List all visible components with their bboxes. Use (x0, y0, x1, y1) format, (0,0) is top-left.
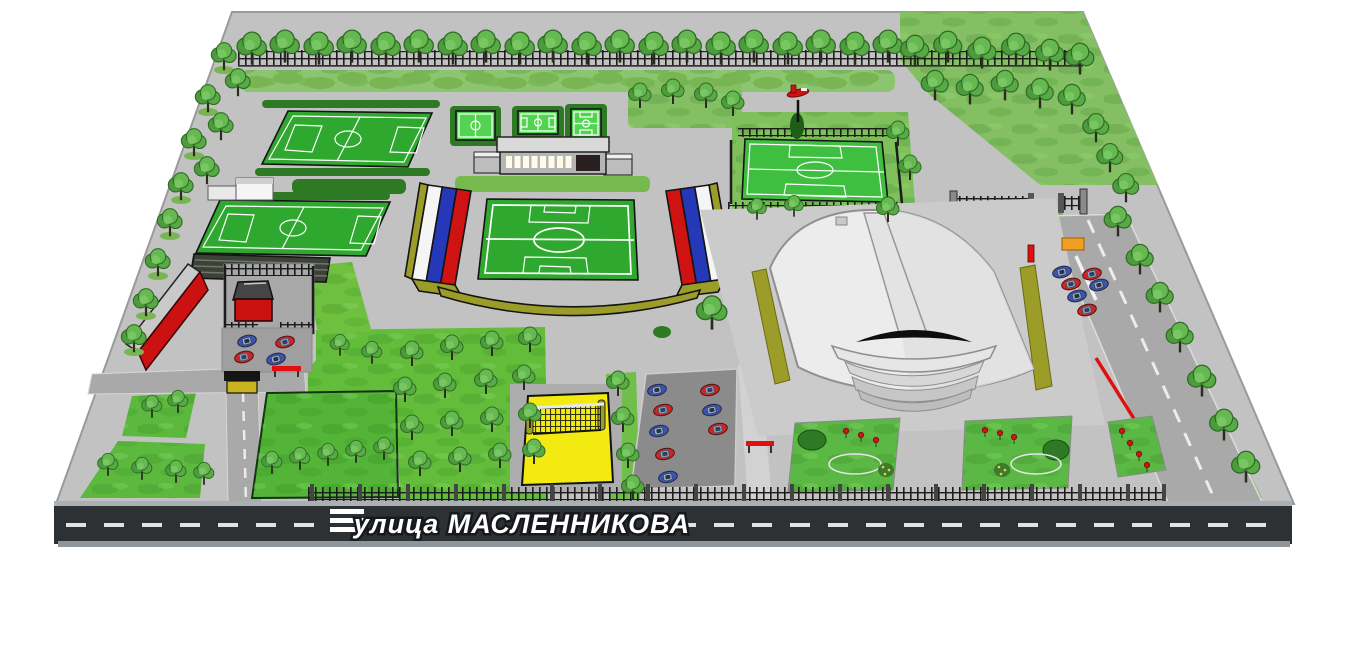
volleyball-court (510, 384, 622, 492)
site-plan-svg: улица МАСЛЕННИКОВА (0, 0, 1347, 658)
mini-court-3 (571, 109, 601, 138)
mini-court-2 (518, 111, 558, 134)
grass-strip-pavilion (455, 176, 650, 192)
street-maslennikova: улица МАСЛЕННИКОВА (54, 501, 1292, 547)
orange-bench (1062, 238, 1084, 250)
barrier-east (1028, 245, 1034, 262)
indoor-arena (700, 198, 1105, 436)
guard-house-red (233, 281, 273, 321)
pavilion-entrance (576, 155, 600, 171)
stadium-pitch (478, 199, 638, 280)
street-curb-bottom (58, 541, 1290, 547)
street-name-label: улица МАСЛЕННИКОВА (352, 509, 690, 539)
arena-roof-vent (836, 217, 847, 225)
hedge-above-field-upper (262, 100, 440, 108)
mini-court-1 (456, 111, 495, 140)
west-parking (222, 328, 312, 372)
site-plan-canvas: улица МАСЛЕННИКОВА (0, 0, 1347, 658)
hedge-below-field-upper (255, 168, 430, 176)
arena-flowerbed-west (788, 418, 900, 492)
hedge-mid-left (292, 179, 406, 194)
arena-flowerbed-east (962, 416, 1072, 490)
training-field-lower (196, 200, 390, 256)
training-field-upper (262, 111, 432, 167)
sports-pavilion (474, 137, 632, 175)
guard-enclosure (224, 264, 314, 334)
ticket-booth (224, 371, 260, 393)
